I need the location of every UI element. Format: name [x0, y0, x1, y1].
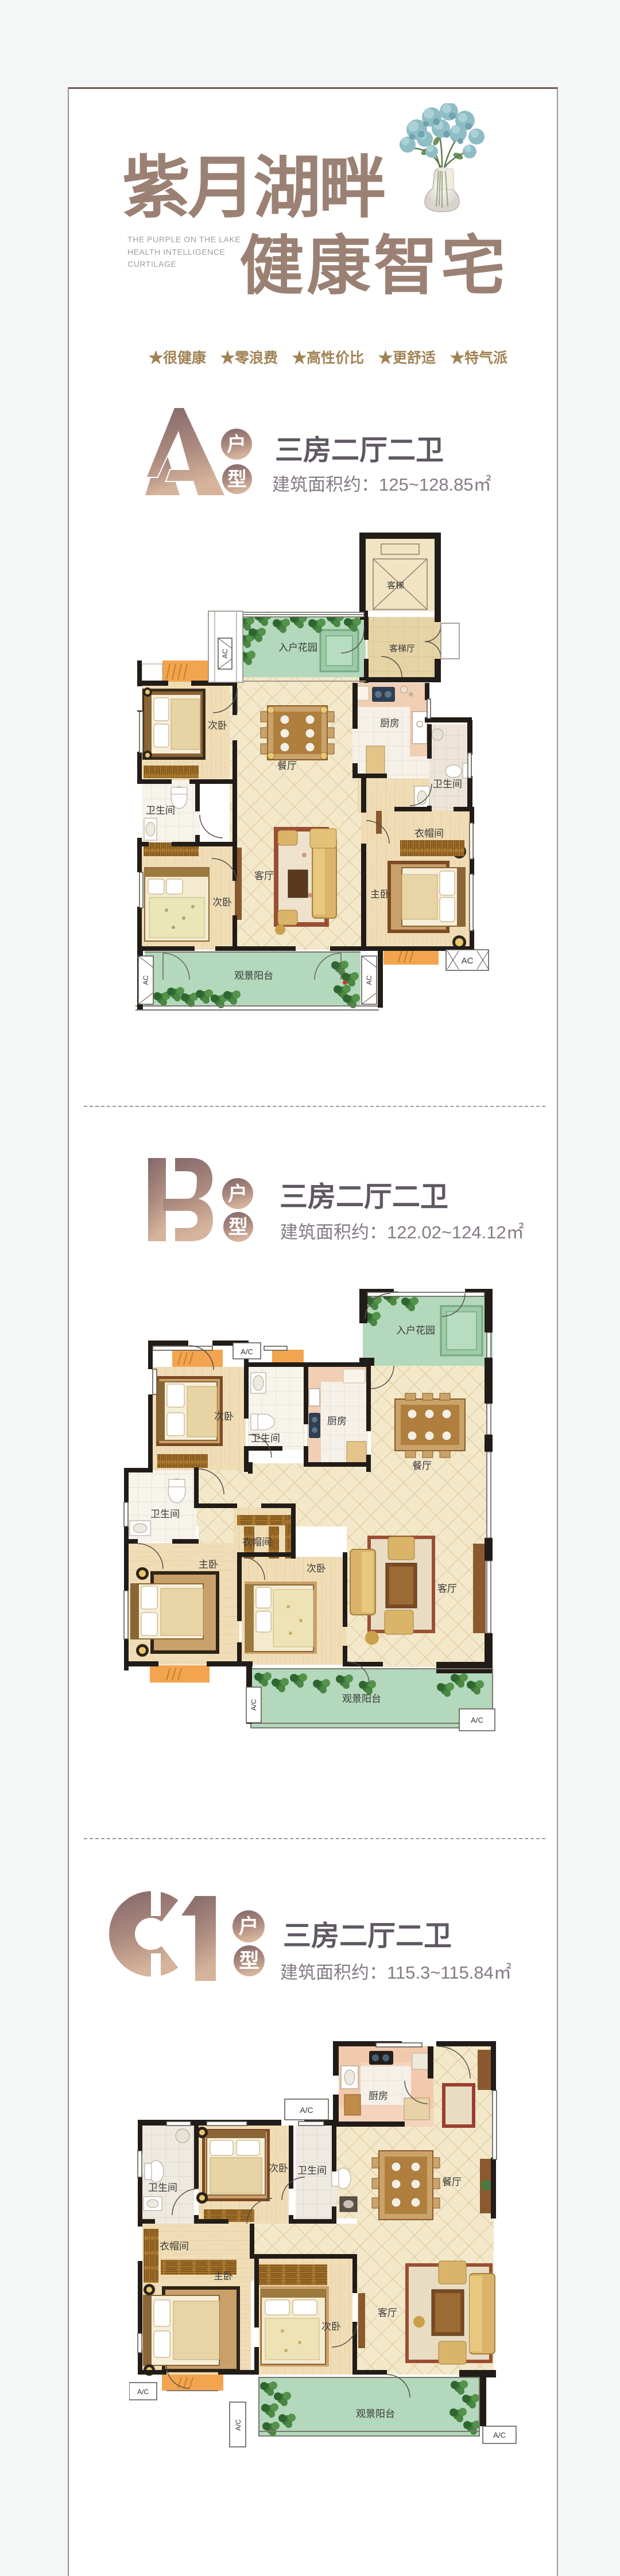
svg-text:客梯: 客梯 [387, 581, 404, 590]
svg-text:A/C: A/C [471, 1716, 483, 1724]
svg-text:观景阳台: 观景阳台 [342, 1693, 381, 1704]
svg-text:型: 型 [228, 1217, 248, 1238]
svg-text:客厅: 客厅 [254, 871, 274, 881]
svg-text:餐厅: 餐厅 [442, 2177, 462, 2188]
svg-text:客厅: 客厅 [378, 2307, 397, 2318]
svg-text:户: 户 [228, 1183, 247, 1205]
svg-text:次卧: 次卧 [208, 720, 227, 731]
svg-text:卫生间: 卫生间 [146, 805, 175, 816]
svg-text:客梯厅: 客梯厅 [389, 644, 415, 654]
svg-text:次卧: 次卧 [214, 1411, 234, 1422]
svg-text:卫生间: 卫生间 [150, 1509, 180, 1520]
svg-text:卫生间: 卫生间 [148, 2182, 177, 2193]
svg-text:餐厅: 餐厅 [412, 1460, 432, 1471]
svg-text:厨房: 厨房 [369, 2091, 388, 2101]
svg-text:次卧: 次卧 [269, 2163, 288, 2174]
svg-text:次卧: 次卧 [321, 2321, 341, 2332]
svg-text:户: 户 [238, 1916, 258, 1938]
svg-text:AC: AC [462, 956, 474, 966]
svg-text:A/C: A/C [241, 1347, 253, 1356]
svg-text:衣帽间: 衣帽间 [414, 828, 444, 839]
svg-text:卫生间: 卫生间 [251, 1433, 280, 1444]
svg-text:型: 型 [239, 1950, 259, 1972]
svg-text:A/C: A/C [493, 2431, 506, 2439]
svg-text:衣帽间: 衣帽间 [160, 2241, 189, 2252]
svg-text:户: 户 [227, 434, 246, 456]
svg-text:衣帽间: 衣帽间 [242, 1537, 272, 1548]
svg-text:餐厅: 餐厅 [277, 760, 297, 771]
svg-text:AC: AC [142, 975, 150, 985]
svg-text:主卧: 主卧 [214, 2271, 233, 2282]
svg-text:AC: AC [365, 975, 373, 985]
svg-text:观景阳台: 观景阳台 [234, 970, 273, 981]
svg-text:主卧: 主卧 [370, 889, 390, 900]
svg-text:入户花园: 入户花园 [278, 642, 317, 653]
svg-text:A/C: A/C [234, 2419, 242, 2431]
svg-text:AC: AC [221, 648, 229, 658]
svg-text:型: 型 [227, 469, 247, 491]
svg-text:观景阳台: 观景阳台 [356, 2408, 395, 2419]
svg-text:A/C: A/C [300, 2105, 313, 2115]
svg-text:次卧: 次卧 [212, 897, 232, 908]
svg-text:次卧: 次卧 [307, 1563, 326, 1574]
svg-text:厨房: 厨房 [327, 1416, 347, 1427]
svg-text:A/C: A/C [250, 1699, 258, 1711]
svg-text:客厅: 客厅 [437, 1583, 457, 1594]
svg-text:卫生间: 卫生间 [433, 779, 462, 790]
svg-text:入户花园: 入户花园 [396, 1325, 435, 1336]
svg-text:卫生间: 卫生间 [297, 2165, 327, 2176]
svg-text:A/C: A/C [137, 2388, 149, 2396]
svg-text:主卧: 主卧 [199, 1559, 218, 1570]
svg-text:厨房: 厨房 [380, 718, 400, 729]
